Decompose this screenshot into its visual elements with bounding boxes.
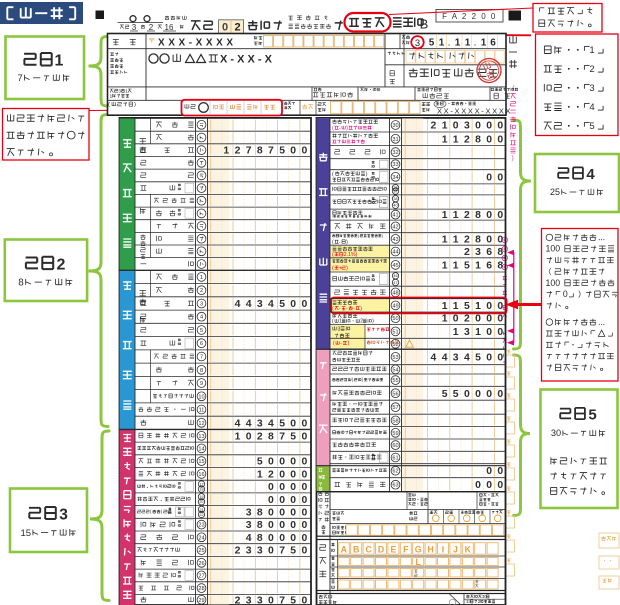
svg-text:0: 0 (302, 469, 308, 480)
svg-text:57: 57 (392, 405, 398, 411)
svg-text:K: K (465, 544, 472, 554)
svg-text:E: E (390, 544, 396, 554)
svg-text:(: ( (332, 306, 334, 312)
svg-text:0: 0 (302, 482, 308, 493)
svg-text:0: 0 (302, 495, 308, 506)
svg-text:8: 8 (257, 146, 263, 157)
svg-text:-: - (359, 214, 360, 218)
svg-text:0: 0 (290, 418, 296, 429)
svg-text:1: 1 (442, 121, 448, 132)
svg-text:0: 0 (497, 466, 503, 477)
svg-text:46: 46 (393, 274, 397, 278)
svg-text:1: 1 (125, 88, 128, 94)
svg-text:0: 0 (475, 480, 481, 491)
svg-text:0: 0 (290, 457, 296, 468)
svg-text:3: 3 (337, 326, 340, 332)
svg-text:6: 6 (200, 341, 203, 347)
svg-text:60: 60 (392, 443, 398, 449)
svg-text:31: 31 (392, 137, 398, 143)
svg-text:L: L (416, 557, 422, 567)
svg-text:40: 40 (393, 204, 397, 208)
svg-text:6: 6 (486, 260, 492, 271)
svg-text:2: 2 (464, 134, 470, 145)
svg-text:(: ( (332, 214, 333, 218)
svg-text:62: 62 (392, 469, 398, 475)
svg-text:1: 1 (257, 469, 263, 480)
svg-text:-: - (340, 341, 342, 347)
svg-text:3: 3 (118, 88, 121, 94)
svg-text:12: 12 (198, 421, 204, 427)
svg-text:1: 1 (475, 327, 481, 338)
svg-text:-: - (367, 214, 368, 218)
svg-text:0: 0 (302, 520, 308, 531)
svg-text:7: 7 (279, 431, 285, 442)
svg-text:0: 0 (279, 533, 285, 544)
svg-text:15: 15 (21, 528, 32, 539)
svg-text:3: 3 (464, 327, 470, 338)
svg-text:5: 5 (279, 146, 285, 157)
svg-text:5: 5 (290, 431, 296, 442)
svg-text:0: 0 (486, 134, 492, 145)
svg-text:25: 25 (198, 548, 204, 554)
svg-text:5: 5 (589, 121, 594, 132)
svg-text:5: 5 (588, 407, 596, 424)
svg-text:0: 0 (279, 457, 285, 468)
svg-text:42: 42 (392, 224, 398, 230)
svg-text:5: 5 (464, 301, 470, 312)
svg-text:7: 7 (17, 73, 22, 84)
svg-text:4: 4 (235, 418, 241, 429)
svg-text:1: 1 (455, 37, 461, 48)
svg-text:0: 0 (563, 289, 568, 299)
svg-text:8: 8 (18, 277, 24, 288)
svg-text:53: 53 (392, 355, 398, 361)
svg-text:4: 4 (246, 533, 252, 544)
svg-text:X X - X X X X - X X X X: X X - X X X X - X X X X (437, 107, 511, 116)
svg-text:0: 0 (290, 482, 296, 493)
svg-text:0: 0 (302, 457, 308, 468)
svg-text:4: 4 (268, 418, 274, 429)
svg-text:(: ( (332, 239, 334, 245)
svg-text:0: 0 (302, 418, 308, 429)
svg-text:22: 22 (199, 513, 203, 517)
svg-text:4: 4 (431, 353, 437, 364)
svg-text:2: 2 (464, 247, 470, 258)
svg-text:0: 0 (497, 210, 503, 221)
svg-text:1: 1 (442, 134, 448, 145)
svg-text:51: 51 (392, 329, 398, 335)
svg-text:41: 41 (392, 213, 398, 219)
svg-text:0: 0 (497, 327, 503, 338)
svg-text:0: 0 (475, 121, 481, 132)
svg-text:(: ( (332, 252, 334, 258)
svg-text:3: 3 (453, 353, 459, 364)
svg-text:27: 27 (198, 574, 204, 580)
svg-text:0: 0 (497, 301, 503, 312)
svg-text:): ) (372, 319, 374, 325)
svg-text:59: 59 (392, 431, 398, 437)
svg-text:5: 5 (453, 389, 459, 400)
svg-text:1: 1 (442, 235, 448, 246)
svg-text:3: 3 (589, 83, 594, 94)
svg-text:1: 1 (442, 314, 448, 325)
svg-text:0: 0 (290, 508, 296, 519)
svg-text:3: 3 (464, 121, 470, 132)
svg-text:0: 0 (268, 495, 274, 506)
svg-text:2: 2 (360, 319, 363, 325)
svg-text:1: 1 (453, 134, 459, 145)
svg-text:9: 9 (200, 381, 203, 387)
svg-text:1: 1 (589, 45, 594, 56)
svg-text:4: 4 (268, 299, 274, 310)
svg-text:X - X X - X: X - X X - X (220, 54, 273, 66)
svg-text:4: 4 (246, 418, 252, 429)
svg-text:25: 25 (550, 187, 560, 197)
svg-text:(: ( (108, 102, 110, 108)
svg-text:2: 2 (268, 469, 274, 480)
svg-text:2: 2 (464, 235, 470, 246)
svg-text:49: 49 (392, 303, 398, 309)
svg-text:3: 3 (475, 247, 481, 258)
svg-text:0: 0 (497, 480, 503, 491)
svg-text:0: 0 (268, 520, 274, 531)
svg-text:-: - (363, 214, 364, 218)
svg-text:8: 8 (497, 260, 503, 271)
svg-text:8: 8 (475, 134, 481, 145)
svg-text:0: 0 (302, 299, 308, 310)
svg-text:5: 5 (290, 546, 296, 557)
svg-text:1: 1 (465, 37, 471, 48)
svg-text:8: 8 (475, 210, 481, 221)
svg-text:15: 15 (198, 459, 204, 465)
svg-text:0: 0 (302, 595, 308, 605)
svg-text:0: 0 (497, 314, 503, 325)
svg-text:1: 1 (442, 301, 448, 312)
svg-text:4: 4 (589, 102, 594, 113)
svg-text:0: 0 (486, 389, 492, 400)
svg-text:): ) (134, 102, 136, 108)
svg-text:(: ( (332, 171, 334, 177)
svg-text:-: - (339, 306, 341, 312)
svg-text:11: 11 (199, 408, 205, 414)
svg-text:2: 2 (234, 22, 240, 34)
svg-text:(: ( (332, 319, 334, 325)
svg-text:4: 4 (586, 166, 595, 183)
svg-text:-: - (346, 306, 348, 312)
svg-text:-: - (348, 214, 349, 218)
svg-text:1: 1 (481, 37, 487, 48)
svg-text:): ) (346, 265, 348, 271)
svg-text:4: 4 (464, 353, 470, 364)
svg-text:0: 0 (268, 595, 274, 605)
svg-text:0: 0 (268, 508, 274, 519)
svg-text:F A 2 2 0 0: F A 2 2 0 0 (442, 12, 497, 21)
svg-text:0: 0 (475, 314, 481, 325)
svg-text:0: 0 (486, 480, 492, 491)
svg-text:26: 26 (198, 561, 204, 567)
svg-text:1: 1 (235, 431, 241, 442)
svg-text:0: 0 (486, 172, 492, 183)
svg-text:48: 48 (392, 291, 398, 297)
svg-text:1: 1 (223, 146, 229, 157)
svg-text:54: 54 (392, 367, 398, 373)
svg-text:18: 18 (199, 488, 203, 492)
svg-text:): ) (366, 171, 368, 177)
svg-text:47: 47 (393, 281, 397, 285)
svg-text:2.1%): 2.1%) (344, 252, 358, 258)
svg-text:8: 8 (497, 247, 503, 258)
svg-text:0: 0 (486, 327, 492, 338)
svg-text:0: 0 (302, 146, 308, 157)
svg-text:H: H (427, 544, 433, 554)
svg-text:0: 0 (290, 495, 296, 506)
svg-text:8: 8 (257, 508, 263, 519)
svg-text:0: 0 (453, 314, 459, 325)
svg-text:4: 4 (235, 299, 241, 310)
svg-text:1: 1 (453, 327, 459, 338)
svg-text:29: 29 (198, 598, 204, 604)
svg-text:-: - (339, 239, 341, 245)
svg-text:3: 3 (257, 418, 263, 429)
svg-text:2: 2 (57, 257, 66, 274)
svg-text:-: - (355, 214, 356, 218)
svg-text:8: 8 (257, 533, 263, 544)
svg-text:0: 0 (290, 299, 296, 310)
svg-text:2: 2 (589, 64, 594, 75)
svg-text:2: 2 (431, 121, 437, 132)
svg-text:23: 23 (198, 523, 204, 529)
svg-text:0: 0 (486, 235, 492, 246)
svg-text:5: 5 (279, 299, 285, 310)
svg-text:-: - (336, 214, 337, 218)
svg-text:4: 4 (200, 315, 203, 321)
svg-text:0: 0 (222, 22, 228, 34)
svg-text:(: ( (332, 265, 334, 271)
svg-text:I: I (442, 544, 444, 554)
svg-text:24: 24 (198, 535, 204, 541)
svg-text:0: 0 (268, 546, 274, 557)
svg-text:F: F (403, 544, 409, 554)
svg-text:1: 1 (55, 53, 64, 70)
svg-text:0: 0 (268, 482, 274, 493)
svg-text:8: 8 (200, 368, 203, 374)
svg-text:-: - (572, 340, 575, 350)
svg-text:0: 0 (290, 533, 296, 544)
svg-text:A: A (341, 544, 348, 554)
svg-text:-: - (352, 214, 353, 218)
svg-text:7: 7 (279, 546, 285, 557)
svg-text:2: 2 (235, 595, 241, 605)
svg-text:0: 0 (302, 431, 308, 442)
svg-text:J: J (453, 544, 458, 554)
svg-text:0: 0 (279, 495, 285, 506)
svg-text:0: 0 (486, 314, 492, 325)
svg-text:6: 6 (486, 247, 492, 258)
svg-text:7: 7 (246, 146, 252, 157)
svg-text:): ) (348, 341, 350, 347)
svg-text:1: 1 (339, 319, 342, 325)
svg-text:33: 33 (392, 162, 398, 168)
svg-text:0: 0 (486, 301, 492, 312)
svg-text:2: 2 (200, 288, 203, 294)
svg-text:58: 58 (392, 418, 398, 424)
svg-text:.: . (448, 37, 451, 48)
svg-text:30: 30 (551, 428, 561, 438)
svg-text:5: 5 (429, 37, 435, 48)
svg-text:2: 2 (464, 314, 470, 325)
svg-text:-: - (339, 125, 341, 131)
svg-text:63: 63 (392, 483, 398, 489)
svg-text:2: 2 (235, 146, 241, 157)
svg-text:5: 5 (257, 457, 263, 468)
svg-text:5: 5 (442, 389, 448, 400)
svg-text:0: 0 (486, 353, 492, 364)
svg-text:3: 3 (415, 38, 420, 49)
svg-text:B: B (353, 544, 359, 554)
svg-text:0: 0 (486, 210, 492, 221)
svg-text:0: 0 (497, 389, 503, 400)
svg-text:1: 1 (442, 260, 448, 271)
svg-text:5: 5 (200, 328, 203, 334)
svg-text:56: 56 (392, 391, 398, 397)
svg-text:100: 100 (546, 278, 561, 288)
svg-text:0: 0 (302, 508, 308, 519)
svg-text:100: 100 (546, 244, 561, 254)
svg-text:3: 3 (246, 508, 252, 519)
svg-text:1: 1 (110, 93, 113, 99)
svg-text:3: 3 (257, 299, 263, 310)
svg-text:X X X - X X X X: X X X - X X X X (158, 38, 233, 49)
svg-text:0: 0 (475, 389, 481, 400)
svg-text:50: 50 (392, 316, 398, 322)
svg-text:1: 1 (439, 37, 445, 48)
svg-text:0: 0 (279, 508, 285, 519)
svg-text:34: 34 (392, 175, 398, 181)
svg-text:55: 55 (392, 378, 398, 384)
svg-text:5: 5 (475, 353, 481, 364)
svg-text:): ) (360, 306, 362, 312)
svg-text:0: 0 (279, 482, 285, 493)
svg-text:4: 4 (442, 353, 448, 364)
svg-text:38: 38 (393, 197, 397, 201)
svg-text:0: 0 (497, 172, 503, 183)
svg-text:43: 43 (392, 237, 398, 243)
svg-text:0: 0 (302, 546, 308, 557)
svg-text:0: 0 (497, 121, 503, 132)
svg-text:B: B (420, 17, 429, 32)
svg-text:0: 0 (497, 235, 503, 246)
svg-text:3: 3 (59, 507, 68, 524)
svg-text:8: 8 (257, 520, 263, 531)
svg-text:37: 37 (393, 190, 397, 194)
svg-text:): ) (346, 239, 348, 245)
svg-text:0: 0 (290, 469, 296, 480)
svg-text:28: 28 (198, 586, 204, 592)
svg-text:(: ( (332, 125, 334, 131)
svg-text:-: - (344, 214, 345, 218)
svg-text:0: 0 (279, 469, 285, 480)
svg-text:1: 1 (200, 275, 203, 281)
svg-text:3: 3 (200, 302, 203, 308)
svg-text:3: 3 (246, 520, 252, 531)
svg-text:.: . (474, 37, 477, 48)
svg-text:8: 8 (268, 431, 274, 442)
svg-text:5: 5 (279, 418, 285, 429)
svg-text:20: 20 (199, 500, 203, 504)
svg-text:0: 0 (246, 431, 252, 442)
svg-text:2: 2 (464, 210, 470, 221)
svg-text:3: 3 (246, 595, 252, 605)
svg-text:0: 0 (290, 520, 296, 531)
svg-text:3: 3 (246, 546, 252, 557)
svg-text:0: 0 (497, 353, 503, 364)
svg-text:0: 0 (268, 533, 274, 544)
svg-text:5: 5 (290, 595, 296, 605)
svg-text:0: 0 (497, 134, 503, 145)
svg-text:0: 0 (279, 520, 285, 531)
svg-text:7: 7 (200, 355, 203, 361)
svg-text:+: + (339, 265, 342, 271)
svg-text:0: 0 (268, 457, 274, 468)
svg-text:1: 1 (453, 301, 459, 312)
svg-text:14: 14 (198, 447, 204, 453)
svg-text:0: 0 (302, 533, 308, 544)
svg-text:13: 13 (198, 434, 204, 440)
svg-text:-: - (353, 306, 355, 312)
svg-text:44: 44 (392, 250, 398, 256)
svg-text:0: 0 (486, 466, 492, 477)
svg-text:G: G (415, 544, 422, 554)
svg-text:(: ( (333, 341, 335, 347)
svg-text:3: 3 (257, 595, 263, 605)
svg-text:1: 1 (475, 301, 481, 312)
svg-text:0: 0 (290, 146, 296, 157)
svg-text:2: 2 (257, 431, 263, 442)
svg-text:3: 3 (257, 546, 263, 557)
svg-text:1: 1 (453, 260, 459, 271)
svg-text:7: 7 (279, 595, 285, 605)
svg-text:1: 1 (453, 210, 459, 221)
svg-text:2: 2 (235, 546, 241, 557)
svg-text:0: 0 (453, 121, 459, 132)
svg-text:1: 1 (442, 210, 448, 221)
svg-text:16: 16 (198, 472, 204, 478)
svg-text:-: - (340, 214, 341, 218)
svg-text:1: 1 (453, 235, 459, 246)
svg-text:): ) (371, 214, 372, 218)
svg-text:D: D (378, 544, 384, 554)
svg-text:6: 6 (490, 37, 496, 48)
svg-text:1: 1 (475, 260, 481, 271)
svg-text:30: 30 (392, 123, 398, 129)
svg-text:5: 5 (464, 260, 470, 271)
svg-text:8: 8 (475, 235, 481, 246)
svg-text:7: 7 (268, 146, 274, 157)
svg-text:C: C (365, 544, 372, 554)
svg-text:4: 4 (246, 299, 252, 310)
svg-text:0: 0 (464, 389, 470, 400)
svg-text:61: 61 (392, 456, 398, 462)
svg-text:45: 45 (392, 263, 398, 269)
svg-text:0: 0 (486, 121, 492, 132)
svg-text:32: 32 (392, 150, 398, 156)
svg-text:): ) (346, 125, 348, 131)
svg-text:10: 10 (198, 394, 204, 400)
